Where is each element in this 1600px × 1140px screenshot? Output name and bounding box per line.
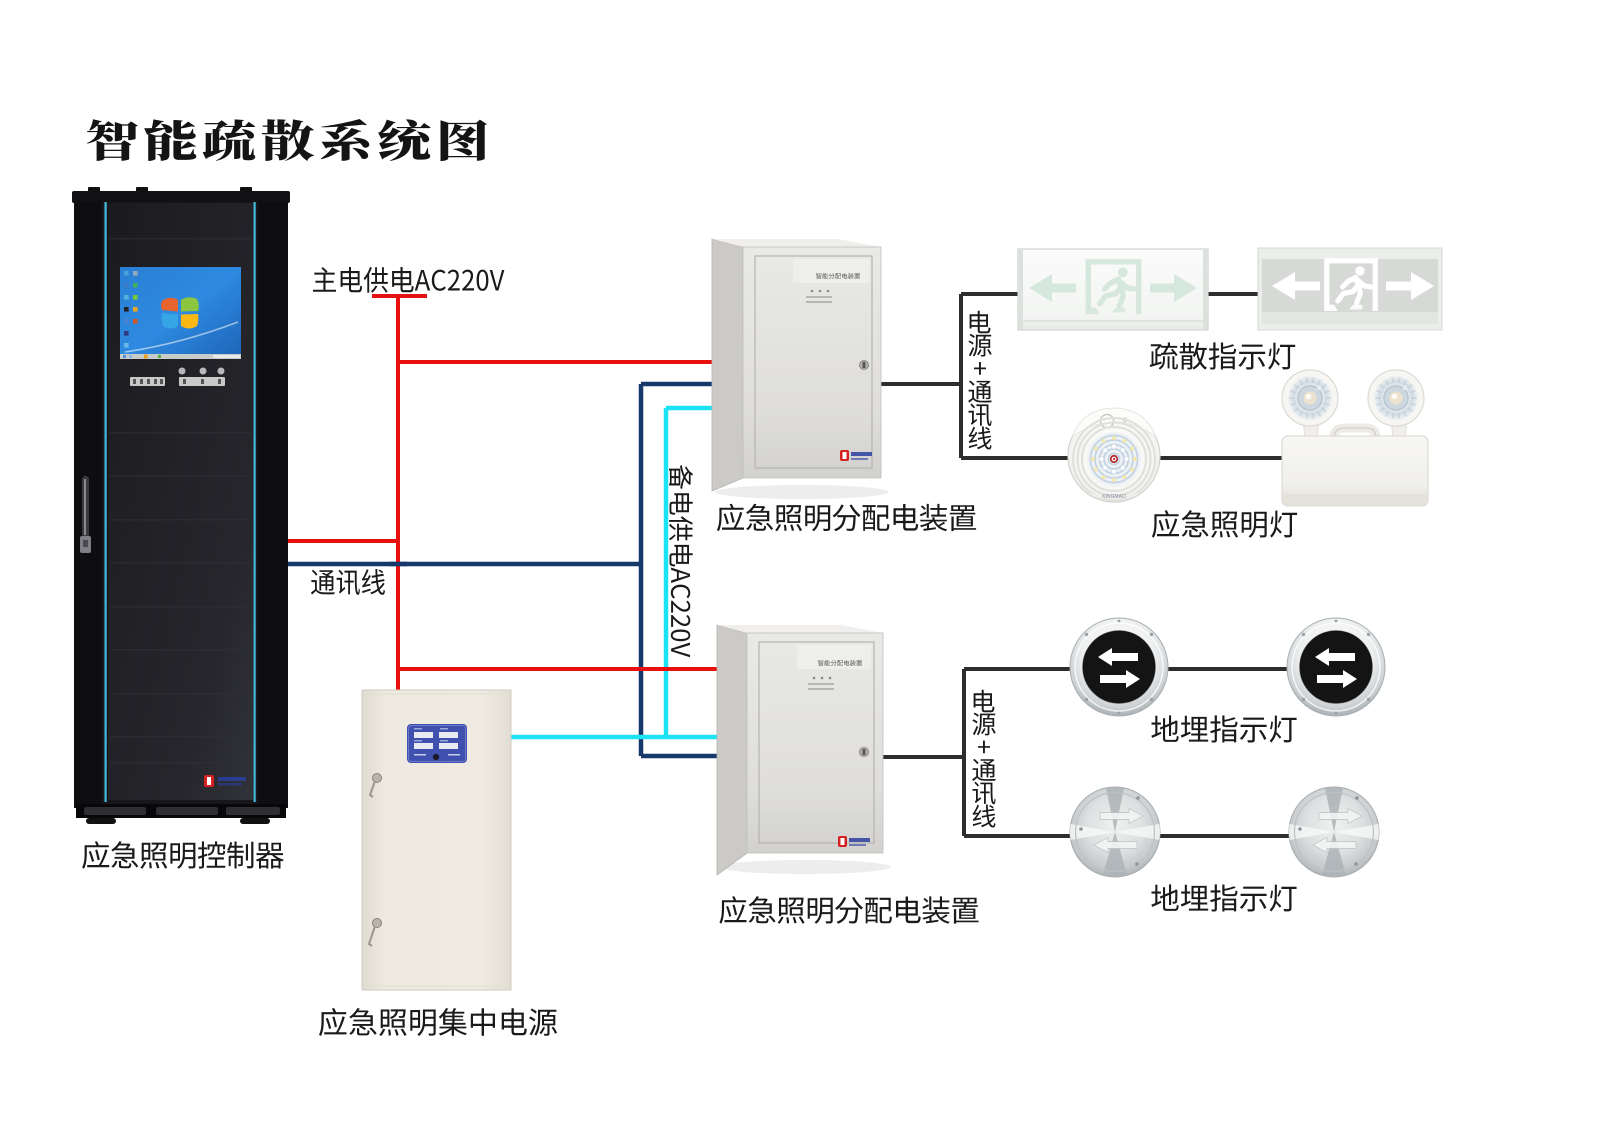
svg-text:KINGMAO: KINGMAO bbox=[1102, 494, 1126, 500]
